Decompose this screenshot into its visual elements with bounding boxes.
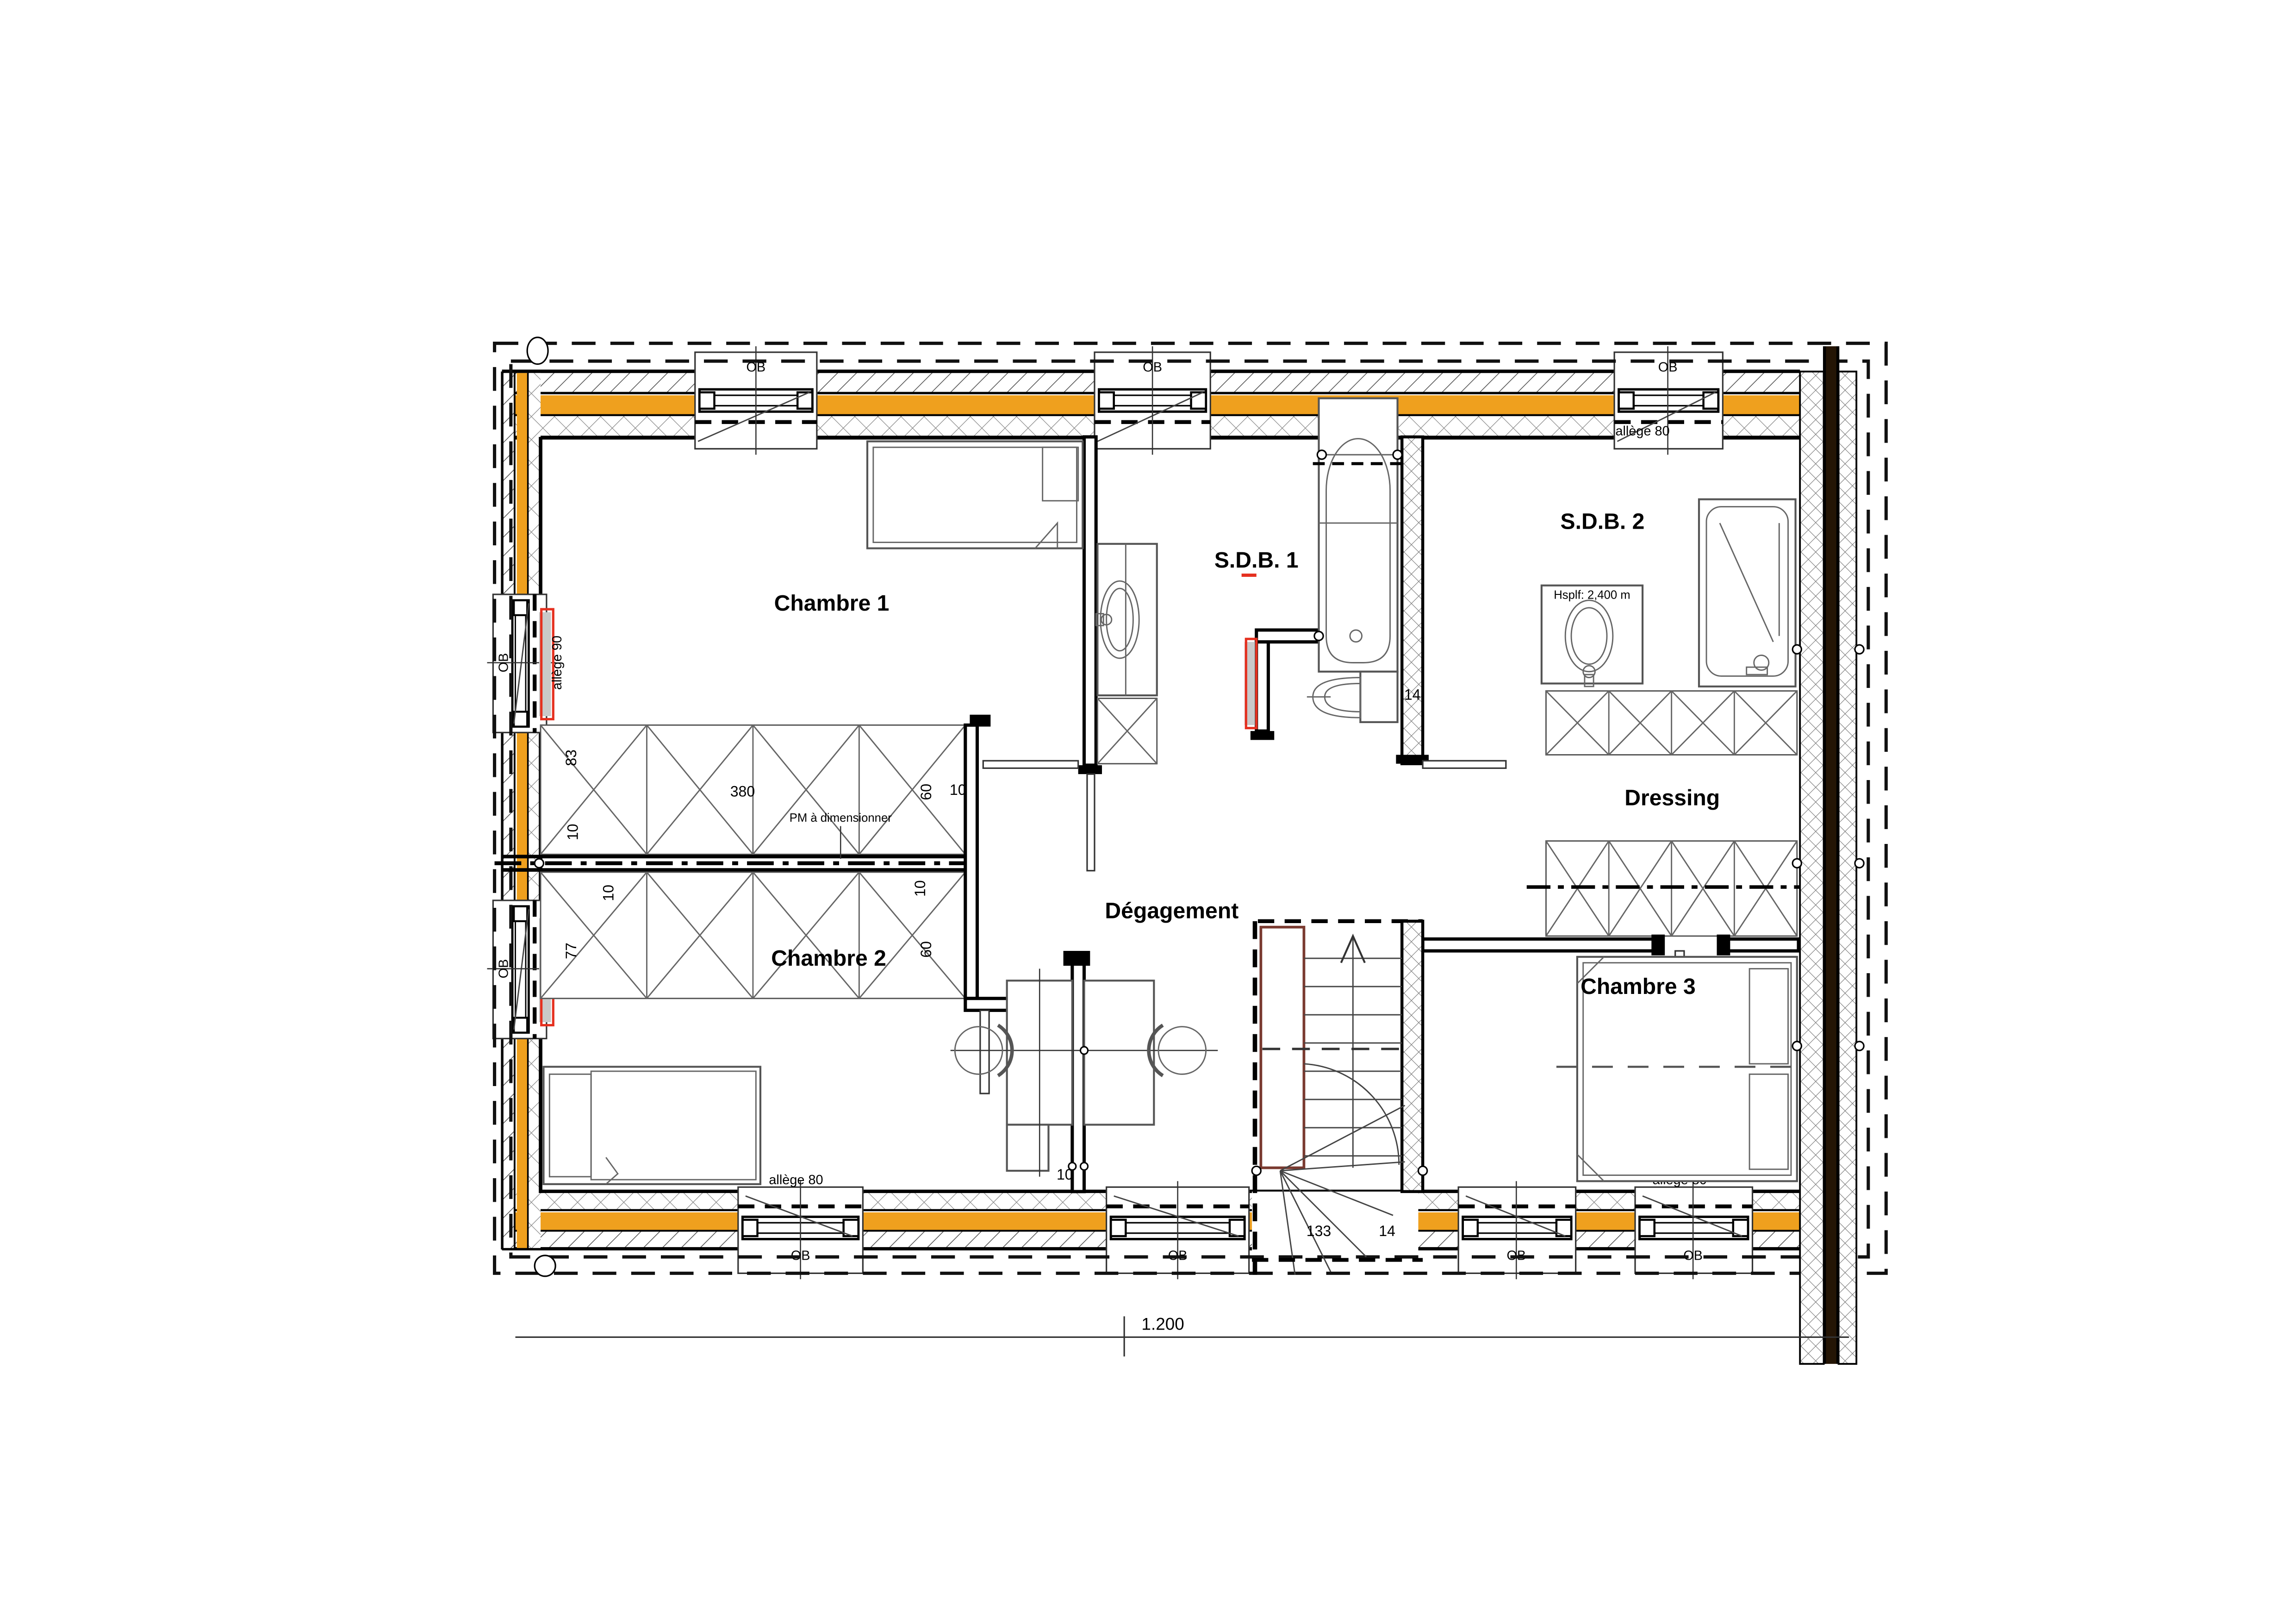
window-bottom-2: OB xyxy=(1107,1181,1249,1279)
dim-60: 60 xyxy=(918,941,934,958)
window-bottom-1: OB allège 80 xyxy=(738,1173,863,1279)
door-leaf-chambre1 xyxy=(983,761,1078,768)
desk-right xyxy=(1084,981,1154,1124)
door-leaf-dressing xyxy=(1423,761,1506,768)
door-leaf-sdb1 xyxy=(1087,774,1095,871)
bathtub xyxy=(1313,398,1404,671)
dim-wall-14: 14 xyxy=(1404,687,1421,703)
window-bottom-3: OB xyxy=(1458,1181,1576,1279)
stair-stringer xyxy=(1261,927,1304,1168)
room-label-chambre3: Chambre 3 xyxy=(1580,974,1696,999)
allege-label: allège 90 xyxy=(550,636,565,690)
shower xyxy=(1699,500,1796,687)
sdb1-vanity xyxy=(1096,544,1157,695)
insulation-left xyxy=(517,373,527,1248)
pm-note: PM à dimensionner xyxy=(790,812,892,824)
window-label: OB xyxy=(496,653,511,673)
floor-plan: OB OB OB allège 80 OB allège xyxy=(0,0,2296,1624)
room-label-sdb1: S.D.B. 1 xyxy=(1214,548,1299,573)
party-wall-core xyxy=(1825,346,1837,1364)
door-leaf-chambre2 xyxy=(980,1010,989,1093)
allege-label: allège 80 xyxy=(1615,424,1669,439)
dim-desk-10: 10 xyxy=(1057,1166,1073,1183)
room-label-chambre1: Chambre 1 xyxy=(774,591,890,616)
wall-14 xyxy=(1402,437,1423,764)
dim-380: 380 xyxy=(730,783,755,800)
dim-stair-14: 14 xyxy=(1379,1223,1395,1239)
dim-83: 83 xyxy=(563,750,579,766)
room-label-chambre2: Chambre 2 xyxy=(771,946,886,971)
dim-77: 77 xyxy=(563,943,579,959)
room-label-dressing: Dressing xyxy=(1624,786,1720,811)
dim-10: 10 xyxy=(600,885,616,901)
window-bottom-4: OB allège 80 xyxy=(1635,1173,1753,1279)
party-wall xyxy=(1800,346,1856,1364)
ceiling-height-note: Hsplf: 2,400 m xyxy=(1554,589,1630,602)
dim-10: 10 xyxy=(950,781,966,798)
dim-stair-133: 133 xyxy=(1307,1223,1332,1239)
dim-60: 60 xyxy=(918,784,934,800)
bed-chambre1 xyxy=(867,441,1083,548)
paper xyxy=(0,0,2296,1624)
sdb1-cabinet xyxy=(1097,699,1157,764)
stair-wall xyxy=(1402,921,1423,1192)
window-left-1: OB allège 90 xyxy=(487,594,565,732)
dressing-counter-top xyxy=(1546,691,1797,755)
room-label-sdb2: S.D.B. 2 xyxy=(1561,509,1645,534)
sdb1-red-mark xyxy=(1242,574,1257,577)
dim-10: 10 xyxy=(912,880,928,897)
allege-label: allège 80 xyxy=(769,1173,823,1187)
window-top-3: OB allège 80 xyxy=(1614,346,1723,455)
window-label: OB xyxy=(496,959,511,979)
bed-chambre2 xyxy=(543,1067,760,1184)
dim-10: 10 xyxy=(564,824,581,840)
room-label-degagement: Dégagement xyxy=(1105,898,1238,923)
dim-total: 1.200 xyxy=(1141,1314,1184,1333)
dressing-counter-bottom xyxy=(1527,841,1800,936)
